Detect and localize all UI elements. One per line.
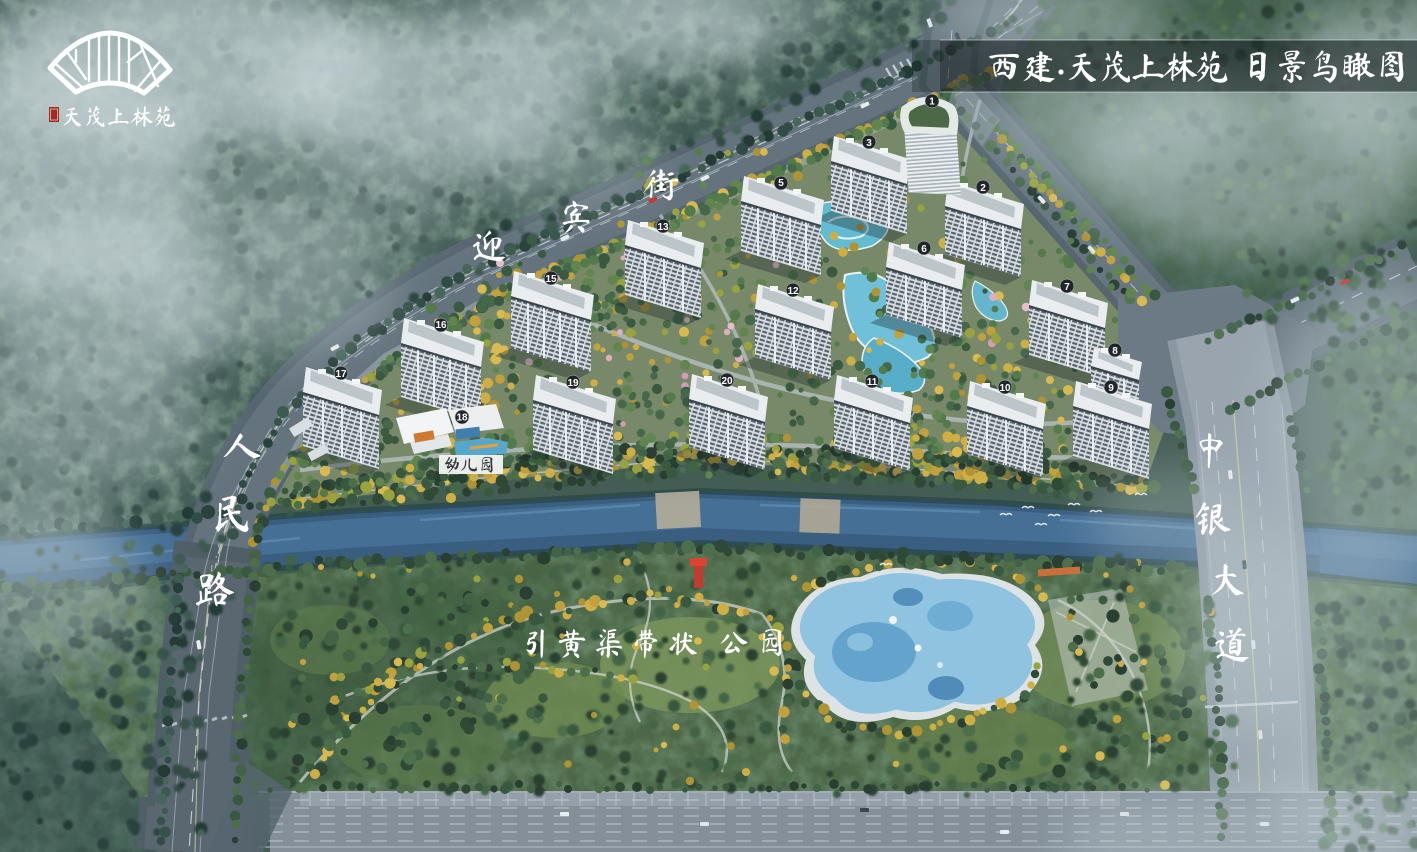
svg-text:20: 20: [721, 376, 733, 387]
svg-text:13: 13: [657, 222, 669, 233]
svg-text:19: 19: [567, 378, 579, 389]
svg-text:8: 8: [1112, 346, 1118, 357]
svg-text:18: 18: [456, 413, 468, 424]
svg-text:6: 6: [921, 244, 927, 255]
svg-text:12: 12: [787, 286, 799, 297]
svg-text:9: 9: [1108, 383, 1114, 394]
svg-text:2: 2: [980, 183, 986, 194]
svg-text:11: 11: [867, 377, 878, 388]
svg-text:5: 5: [778, 178, 784, 189]
svg-text:17: 17: [335, 369, 347, 380]
svg-text:7: 7: [1064, 282, 1070, 293]
svg-text:16: 16: [435, 320, 447, 331]
svg-text:1: 1: [929, 97, 935, 108]
svg-text:15: 15: [545, 274, 557, 285]
svg-text:10: 10: [999, 383, 1011, 394]
svg-text:3: 3: [866, 138, 872, 149]
